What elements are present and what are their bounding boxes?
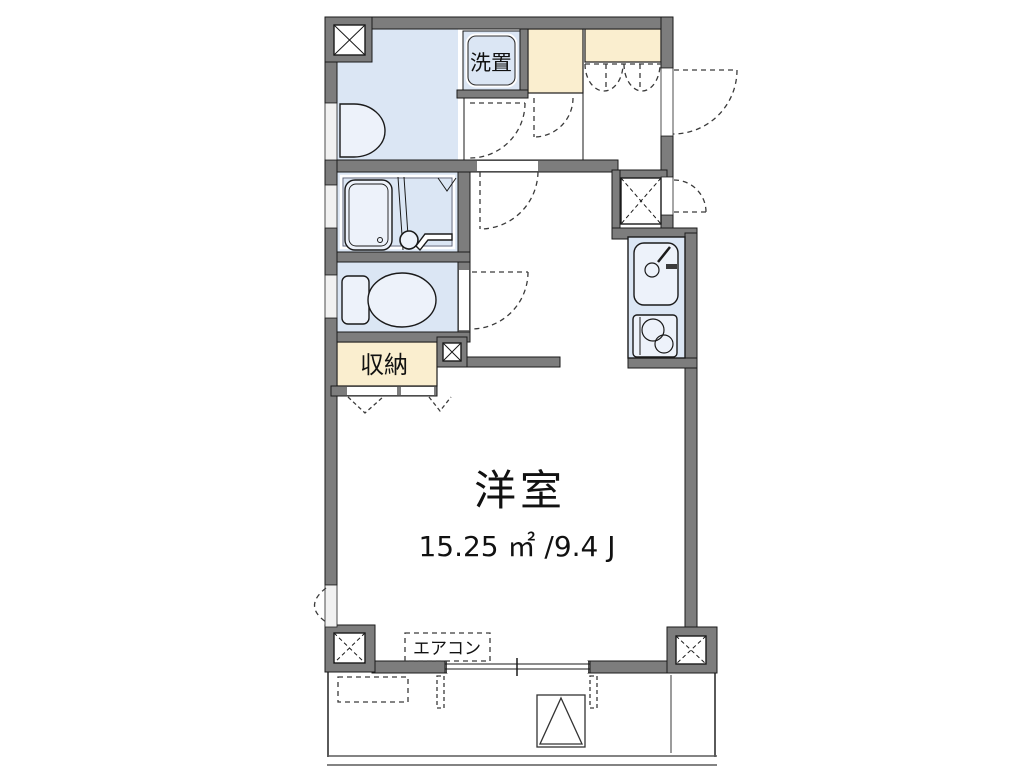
entry-door-opening: [661, 68, 673, 136]
pillar-marker-storage: [443, 343, 461, 361]
storage-label: 収納: [360, 351, 408, 379]
washer-space-label: 洗置: [470, 51, 512, 75]
stove: [633, 315, 677, 357]
toilet-window: [325, 275, 337, 318]
pillar-marker-entrance: [621, 178, 661, 224]
main-room-label: 洋室: [474, 466, 566, 515]
side-window: [325, 585, 337, 627]
kitchen-sink: [634, 243, 678, 305]
pillar-marker-bottom-left: [334, 633, 365, 663]
storage-door-opening-left: [347, 387, 397, 395]
window-stub-right: [590, 676, 597, 708]
bathtub: [345, 180, 392, 250]
bathroom-window: [325, 185, 337, 228]
floor-plan: 洗置 収納 洋室 15.25 ㎡ /9.4 J エアコン: [0, 0, 1019, 775]
kitchen: [628, 237, 685, 358]
floor-plan-drawing: 洗置 収納 洋室 15.25 ㎡ /9.4 J エアコン: [0, 0, 1019, 775]
pillar-marker-top-left: [334, 25, 365, 55]
window-stub-left: [437, 676, 444, 708]
bath-drain: [400, 231, 418, 249]
balcony: [327, 672, 717, 765]
evacuation-hatch: [537, 695, 585, 747]
main-room-area-label: 15.25 ㎡ /9.4 J: [418, 530, 615, 563]
pillar-marker-bottom-right: [676, 636, 706, 664]
outdoor-unit-dashed-box: [338, 677, 408, 702]
storage-door-opening-right: [401, 387, 434, 395]
toilet-door-opening: [459, 270, 469, 330]
meter-box-door-opening: [661, 177, 673, 215]
main-room-door-opening: [477, 161, 538, 171]
air-conditioner-label: エアコン: [413, 639, 481, 659]
washroom-window: [325, 103, 337, 160]
entrance-shoe-cabinet: [585, 29, 661, 62]
toilet: [342, 273, 436, 327]
hall-closet: [528, 29, 583, 93]
side-window-swing: [315, 588, 327, 622]
